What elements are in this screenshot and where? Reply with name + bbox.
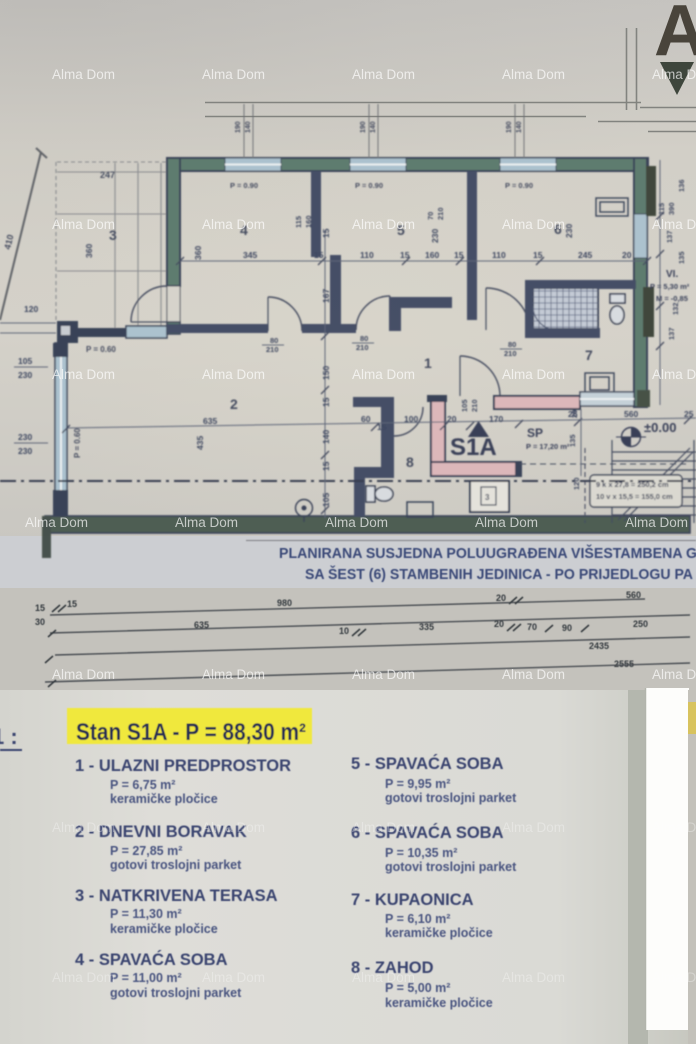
svg-text:140: 140 xyxy=(516,121,523,133)
svg-text:90: 90 xyxy=(562,623,572,633)
svg-text:10: 10 xyxy=(339,626,349,636)
svg-text:15: 15 xyxy=(321,397,331,407)
svg-text:Alma Dom: Alma Dom xyxy=(52,217,115,232)
svg-text:Alma Dom: Alma Dom xyxy=(502,970,565,985)
svg-text:Alma Dom: Alma Dom xyxy=(652,367,696,382)
svg-text:167: 167 xyxy=(321,289,331,303)
svg-text:Alma Dom: Alma Dom xyxy=(352,217,415,232)
svg-text:15: 15 xyxy=(533,250,543,260)
svg-text:250: 250 xyxy=(633,619,648,629)
svg-text:P = 0.90: P = 0.90 xyxy=(505,181,533,190)
svg-text:Alma Dom: Alma Dom xyxy=(652,667,696,682)
svg-text:S1A: S1A xyxy=(450,434,497,461)
svg-text:5 - SPAVAĆA SOBA: 5 - SPAVAĆA SOBA xyxy=(351,754,504,773)
svg-text:P = 17,20 m²: P = 17,20 m² xyxy=(526,442,570,451)
svg-text:3 - NATKRIVENA TERASA: 3 - NATKRIVENA TERASA xyxy=(75,887,278,905)
svg-text:135: 135 xyxy=(568,434,577,447)
svg-text:160: 160 xyxy=(425,250,439,260)
svg-text:Alma Dom: Alma Dom xyxy=(352,67,415,82)
svg-text:190: 190 xyxy=(506,121,513,133)
svg-text:70: 70 xyxy=(426,212,435,220)
svg-text:435: 435 xyxy=(195,436,205,450)
svg-text:Stan S1A - P = 88,30 m²: Stan S1A - P = 88,30 m² xyxy=(76,719,306,746)
svg-text:P = 5,30 m²: P = 5,30 m² xyxy=(650,282,690,291)
svg-text:2435: 2435 xyxy=(589,641,609,651)
svg-text:150: 150 xyxy=(321,366,331,380)
svg-text:245: 245 xyxy=(578,250,592,260)
svg-text:Alma Dom: Alma Dom xyxy=(202,820,265,835)
svg-text:230: 230 xyxy=(18,432,32,442)
svg-text:Alma Dom: Alma Dom xyxy=(52,67,115,82)
svg-text:P = 0.60: P = 0.60 xyxy=(73,428,82,458)
svg-text:Alma Dom: Alma Dom xyxy=(475,515,538,530)
svg-text:15: 15 xyxy=(35,603,45,613)
svg-text:P = 0.60: P = 0.60 xyxy=(86,345,116,354)
svg-text:7 - KUPAONICA: 7 - KUPAONICA xyxy=(351,891,474,909)
svg-text:SA ŠEST (6) STAMBENIH JEDINICA: SA ŠEST (6) STAMBENIH JEDINICA - PO PRIJ… xyxy=(305,565,693,583)
svg-text:1: 1 xyxy=(424,355,432,371)
svg-text:4 - SPAVAĆA SOBA: 4 - SPAVAĆA SOBA xyxy=(75,950,228,969)
svg-text:VI.: VI. xyxy=(666,269,678,280)
svg-text:635: 635 xyxy=(194,620,209,630)
svg-text:80: 80 xyxy=(270,336,278,345)
svg-text:210: 210 xyxy=(436,207,445,220)
svg-text:10 v x 15,5 = 155,0 cm: 10 v x 15,5 = 155,0 cm xyxy=(596,492,673,501)
svg-text:230: 230 xyxy=(430,229,440,243)
svg-text:230: 230 xyxy=(18,370,32,380)
svg-text:20: 20 xyxy=(622,250,632,260)
svg-text:15: 15 xyxy=(67,599,77,609)
svg-text:560: 560 xyxy=(626,590,641,600)
svg-text:Alma Dom: Alma Dom xyxy=(325,515,388,530)
svg-text:120: 120 xyxy=(24,304,38,314)
svg-text:247: 247 xyxy=(100,170,115,180)
svg-text:80: 80 xyxy=(508,340,516,349)
svg-text:P = 11,30 m²: P = 11,30 m² xyxy=(110,907,182,921)
svg-text:3: 3 xyxy=(485,493,490,502)
svg-text:980: 980 xyxy=(277,598,292,608)
svg-text:gotovi troslojni parket: gotovi troslojni parket xyxy=(385,791,517,805)
svg-text:560: 560 xyxy=(624,409,638,419)
svg-text:210: 210 xyxy=(266,345,279,354)
svg-text:15: 15 xyxy=(321,461,331,471)
svg-text:Alma Dom: Alma Dom xyxy=(652,217,696,232)
svg-text:Alma Dom: Alma Dom xyxy=(52,667,115,682)
svg-text:±0.00: ±0.00 xyxy=(644,420,676,435)
svg-text:keramičke pločice: keramičke pločice xyxy=(385,926,493,940)
svg-text:SP: SP xyxy=(527,426,543,440)
svg-text:Alma Dom: Alma Dom xyxy=(352,367,415,382)
svg-text:Alma Dom: Alma Dom xyxy=(202,217,265,232)
svg-text:Alma Dom: Alma Dom xyxy=(202,667,265,682)
svg-text:Alma Dom: Alma Dom xyxy=(175,515,238,530)
svg-text:Alma Dom: Alma Dom xyxy=(52,970,115,985)
svg-text:25: 25 xyxy=(684,409,694,419)
svg-text:Alma Dom: Alma Dom xyxy=(502,667,565,682)
svg-text:360: 360 xyxy=(193,246,203,260)
svg-text:Alma Dom: Alma Dom xyxy=(352,970,415,985)
svg-text:20: 20 xyxy=(496,593,506,603)
svg-text:P = 27,85 m²: P = 27,85 m² xyxy=(110,844,182,858)
svg-text:105: 105 xyxy=(18,356,32,366)
svg-text:1 - ULAZNI PREDPROSTOR: 1 - ULAZNI PREDPROSTOR xyxy=(75,757,291,775)
svg-text:2: 2 xyxy=(230,396,238,412)
svg-text:1 :: 1 : xyxy=(0,724,18,749)
svg-text:160: 160 xyxy=(304,215,313,228)
svg-text:Alma Dom: Alma Dom xyxy=(352,820,415,835)
svg-text:P = 11,00 m²: P = 11,00 m² xyxy=(110,971,182,985)
svg-text:140: 140 xyxy=(245,121,252,133)
svg-text:120: 120 xyxy=(572,477,581,490)
svg-text:20: 20 xyxy=(494,619,504,629)
svg-text:Alma Dom: Alma Dom xyxy=(652,67,696,82)
svg-text:A: A xyxy=(654,0,696,71)
svg-text:190: 190 xyxy=(235,121,242,133)
svg-text:230: 230 xyxy=(564,224,574,238)
svg-text:60: 60 xyxy=(361,414,371,424)
svg-text:Alma Dom: Alma Dom xyxy=(502,367,565,382)
svg-text:M = -0,85: M = -0,85 xyxy=(656,294,688,303)
svg-text:keramičke pločice: keramičke pločice xyxy=(110,792,218,806)
svg-text:190: 190 xyxy=(360,121,367,133)
svg-text:Alma Dom: Alma Dom xyxy=(52,820,115,835)
svg-text:30: 30 xyxy=(35,617,45,627)
svg-text:135: 135 xyxy=(677,251,686,264)
svg-text:Alma Dom: Alma Dom xyxy=(25,515,88,530)
svg-text:P = 10,35 m²: P = 10,35 m² xyxy=(385,846,457,860)
svg-text:Alma Dom: Alma Dom xyxy=(652,970,696,985)
svg-text:7: 7 xyxy=(585,347,593,363)
svg-text:Alma Dom: Alma Dom xyxy=(352,667,415,682)
svg-text:110: 110 xyxy=(492,250,506,260)
svg-text:345: 345 xyxy=(243,250,257,260)
svg-text:P = 9,95 m²: P = 9,95 m² xyxy=(385,777,450,791)
svg-text:635: 635 xyxy=(203,416,217,426)
svg-text:230: 230 xyxy=(18,446,32,456)
svg-text:70: 70 xyxy=(527,622,537,632)
svg-text:105: 105 xyxy=(460,399,469,412)
svg-text:390: 390 xyxy=(667,202,676,215)
svg-text:P = 6,10 m²: P = 6,10 m² xyxy=(385,912,450,926)
svg-text:110: 110 xyxy=(360,250,374,260)
svg-text:P = 6,75 m²: P = 6,75 m² xyxy=(110,778,175,792)
svg-text:Alma Dom: Alma Dom xyxy=(202,970,265,985)
svg-text:15: 15 xyxy=(314,250,324,260)
svg-text:335: 335 xyxy=(419,622,434,632)
svg-text:137: 137 xyxy=(665,230,674,243)
svg-text:80: 80 xyxy=(360,334,368,343)
svg-text:Alma Dom: Alma Dom xyxy=(202,367,265,382)
svg-text:Alma Dom: Alma Dom xyxy=(625,515,688,530)
svg-text:115: 115 xyxy=(294,216,303,228)
svg-text:140: 140 xyxy=(321,430,331,444)
svg-text:keramičke pločice: keramičke pločice xyxy=(110,922,218,936)
svg-text:2555: 2555 xyxy=(614,659,634,669)
svg-text:Alma Dom: Alma Dom xyxy=(52,367,115,382)
svg-text:132: 132 xyxy=(671,302,680,315)
svg-text:210: 210 xyxy=(356,343,369,352)
svg-text:P = 0.90: P = 0.90 xyxy=(230,181,258,190)
svg-text:gotovi troslojni parket: gotovi troslojni parket xyxy=(385,860,517,874)
svg-text:Alma Dom: Alma Dom xyxy=(502,67,565,82)
svg-text:Alma Dom: Alma Dom xyxy=(502,820,565,835)
svg-text:140: 140 xyxy=(370,121,377,133)
svg-text:keramičke pločice: keramičke pločice xyxy=(385,996,493,1010)
svg-text:115: 115 xyxy=(657,203,666,215)
svg-text:360: 360 xyxy=(84,244,94,258)
svg-text:100: 100 xyxy=(404,414,418,424)
svg-text:Alma Dom: Alma Dom xyxy=(202,67,265,82)
svg-text:Alma Dom: Alma Dom xyxy=(652,820,696,835)
svg-text:15: 15 xyxy=(321,228,331,238)
svg-text:PLANIRANA SUSJEDNA POLUUGRAĐEN: PLANIRANA SUSJEDNA POLUUGRAĐENA VIŠESTAM… xyxy=(279,544,696,562)
svg-text:20: 20 xyxy=(447,414,457,424)
svg-text:P = 0.90: P = 0.90 xyxy=(355,181,383,190)
svg-text:210: 210 xyxy=(470,399,479,412)
svg-text:136: 136 xyxy=(677,179,686,192)
svg-text:20: 20 xyxy=(570,410,579,418)
svg-text:137: 137 xyxy=(667,327,676,340)
svg-text:Alma Dom: Alma Dom xyxy=(502,217,565,232)
svg-text:gotovi troslojni parket: gotovi troslojni parket xyxy=(110,986,242,1000)
svg-text:170: 170 xyxy=(489,414,503,424)
svg-text:210: 210 xyxy=(504,349,517,358)
svg-text:105: 105 xyxy=(321,493,331,507)
svg-text:gotovi troslojni parket: gotovi troslojni parket xyxy=(110,858,242,872)
svg-text:8: 8 xyxy=(406,454,414,470)
